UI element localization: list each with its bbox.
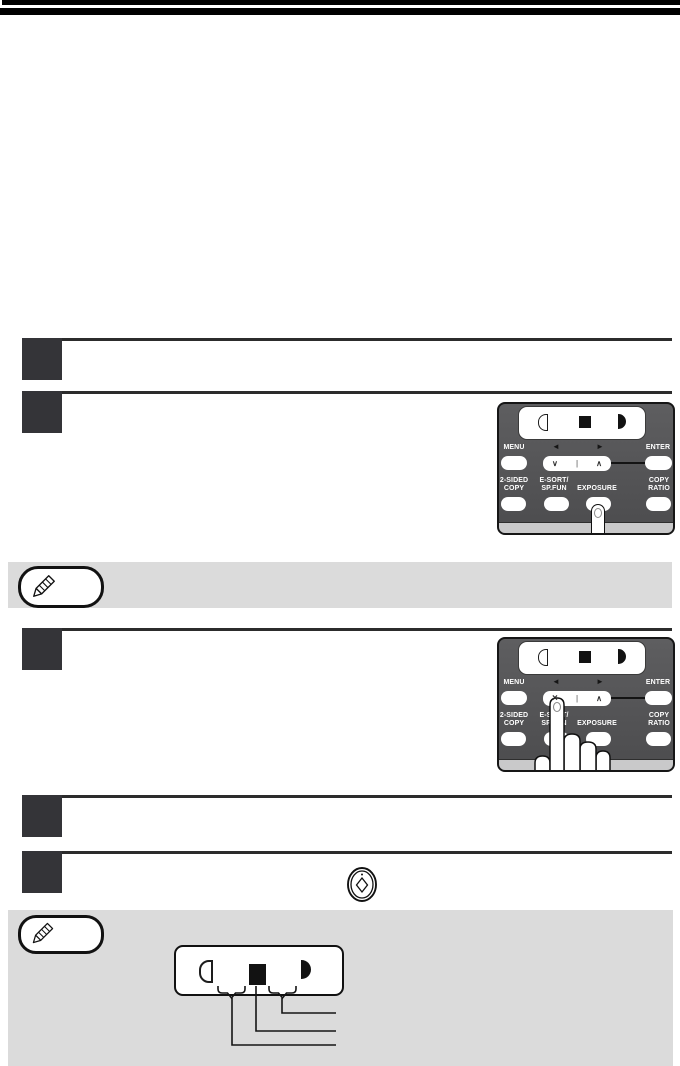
fingernail	[594, 508, 602, 518]
label-line: COPY	[499, 485, 529, 493]
copy-ratio-key	[646, 732, 671, 746]
light-exposure-icon	[199, 960, 213, 983]
label-line: 2-SIDED	[499, 712, 529, 720]
light-exposure-icon	[538, 414, 548, 431]
control-panel-illustration-1: MENU ◄ ► ENTER ∨ | ∧ 2-SIDED COPY E-SORT…	[497, 402, 675, 535]
copy-ratio-key-label: COPY RATIO	[643, 477, 675, 493]
exposure-key	[586, 732, 611, 746]
light-exposure-icon	[538, 649, 548, 666]
label-line: SP.FUN	[537, 720, 571, 728]
left-arrow-icon: ◄	[547, 443, 565, 451]
note-badge	[18, 566, 104, 608]
callout-line	[232, 998, 336, 1045]
scroll-keys: × | ∧	[543, 691, 611, 706]
scroll-keys: ∨ | ∧	[543, 456, 611, 471]
menu-key-label: MENU	[501, 444, 527, 452]
step-2-marker	[22, 391, 62, 433]
enter-key	[645, 691, 672, 705]
copy-ratio-key	[646, 497, 671, 511]
exposure-key-label: EXPOSURE	[575, 720, 619, 728]
two-sided-copy-key-label: 2-SIDED COPY	[499, 477, 529, 493]
label-line: COPY	[643, 477, 675, 485]
exposure-display	[518, 641, 646, 675]
enter-key-connector-line	[611, 697, 645, 699]
control-panel-illustration-2: MENU ◄ ► ENTER × | ∧ 2-SIDED COPY E-SORT…	[497, 637, 675, 772]
two-sided-copy-key	[501, 732, 526, 746]
callout-line	[282, 998, 336, 1013]
menu-key	[501, 456, 527, 470]
note-box-1	[8, 562, 672, 608]
step-5-marker	[22, 851, 62, 893]
step-3-marker	[22, 628, 62, 670]
menu-key-label: MENU	[501, 679, 527, 687]
enter-key-label: ENTER	[641, 444, 675, 452]
scroll-down-pressed-symbol: ×	[552, 694, 558, 704]
esort-spfun-key	[544, 497, 569, 511]
right-arrow-icon: ►	[591, 443, 609, 451]
copy-ratio-key-label: COPY RATIO	[643, 712, 675, 728]
exposure-key-label: EXPOSURE	[575, 485, 619, 493]
enter-key	[645, 456, 672, 470]
two-sided-copy-key-label: 2-SIDED COPY	[499, 712, 529, 728]
enter-key-connector-line	[611, 462, 645, 464]
dark-exposure-icon	[618, 649, 626, 664]
two-sided-copy-key	[501, 497, 526, 511]
medium-exposure-icon	[579, 416, 591, 428]
label-line: RATIO	[643, 485, 675, 493]
panel-bottom-strip	[499, 522, 673, 533]
scroll-key-divider: |	[576, 694, 578, 703]
label-line: E-SORT/	[537, 477, 571, 485]
pencil-icon	[29, 571, 59, 601]
pressing-finger-illustration	[591, 504, 605, 535]
header-bar-title	[0, 8, 680, 15]
label-line: RATIO	[643, 720, 675, 728]
step-1-rule	[62, 338, 672, 341]
menu-key	[501, 691, 527, 705]
scroll-up-symbol: ∧	[596, 459, 602, 468]
note-box-2	[8, 910, 673, 1066]
step-4-rule	[62, 795, 672, 798]
label-line: E-SORT/	[537, 712, 571, 720]
header-bar-top	[2, 0, 680, 5]
step-2-rule	[62, 391, 672, 394]
label-line: SP.FUN	[537, 485, 571, 493]
label-line: 2-SIDED	[499, 477, 529, 485]
panel-bottom-strip	[499, 759, 673, 770]
left-arrow-icon: ◄	[547, 678, 565, 686]
scroll-key-divider: |	[576, 459, 578, 468]
medium-exposure-icon	[249, 964, 266, 985]
step-4-marker	[22, 795, 62, 837]
exposure-level-diagram	[174, 945, 344, 996]
dark-exposure-icon	[618, 414, 626, 429]
dark-exposure-icon	[301, 960, 311, 979]
exposure-display	[518, 406, 646, 440]
scroll-down-symbol: ∨	[552, 459, 558, 468]
right-arrow-icon: ►	[591, 678, 609, 686]
label-line: COPY	[643, 712, 675, 720]
esort-spfun-key-label: E-SORT/ SP.FUN	[537, 477, 571, 493]
note-badge	[18, 915, 104, 954]
step-5-rule	[62, 851, 672, 854]
scroll-up-symbol: ∧	[596, 694, 602, 703]
pencil-icon	[29, 919, 57, 947]
manual-page: { "panel_labels": { "menu": "MENU", "ent…	[0, 0, 680, 1066]
esort-spfun-key	[544, 732, 569, 746]
enter-key-label: ENTER	[641, 679, 675, 687]
esort-spfun-key-label: E-SORT/ SP.FUN	[537, 712, 571, 728]
step-1-marker	[22, 338, 62, 380]
label-line: COPY	[499, 720, 529, 728]
start-indicator-dot	[361, 874, 363, 876]
step-3-rule	[62, 628, 672, 631]
medium-exposure-icon	[579, 651, 591, 663]
start-key-icon	[346, 866, 378, 902]
